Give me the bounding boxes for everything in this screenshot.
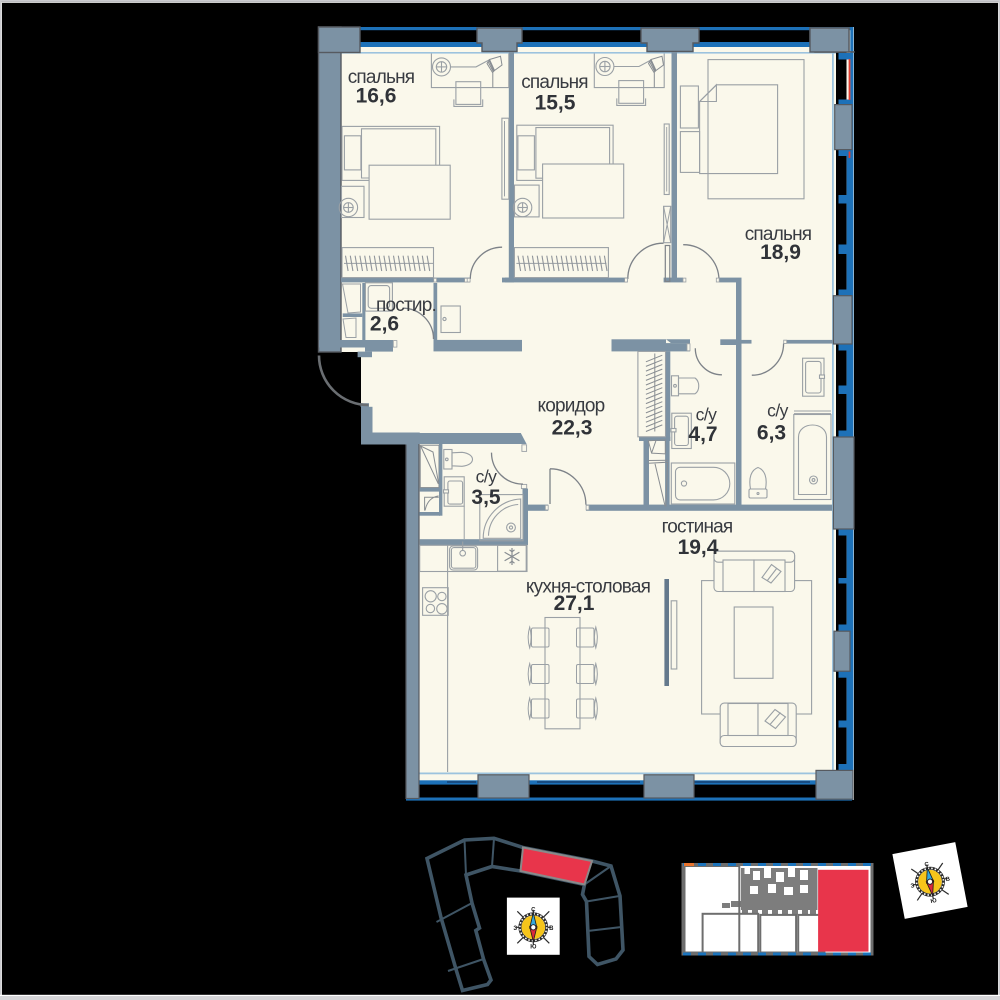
svg-text:спальня: спальня xyxy=(521,72,588,93)
svg-text:с/у: с/у xyxy=(696,405,718,425)
svg-text:22,3: 22,3 xyxy=(552,417,593,440)
svg-text:2,6: 2,6 xyxy=(370,313,399,336)
svg-text:с/у: с/у xyxy=(476,467,498,487)
svg-text:с/у: с/у xyxy=(767,401,789,421)
svg-text:6,3: 6,3 xyxy=(757,422,786,445)
svg-text:18,9: 18,9 xyxy=(760,241,801,264)
svg-text:коридор: коридор xyxy=(538,396,605,417)
svg-text:4,7: 4,7 xyxy=(688,423,717,446)
svg-text:16,6: 16,6 xyxy=(356,85,397,108)
svg-text:15,5: 15,5 xyxy=(535,92,576,115)
svg-text:3,5: 3,5 xyxy=(471,486,501,509)
svg-text:19,4: 19,4 xyxy=(678,536,719,559)
svg-text:27,1: 27,1 xyxy=(554,592,595,615)
svg-text:гостиная: гостиная xyxy=(662,517,733,538)
